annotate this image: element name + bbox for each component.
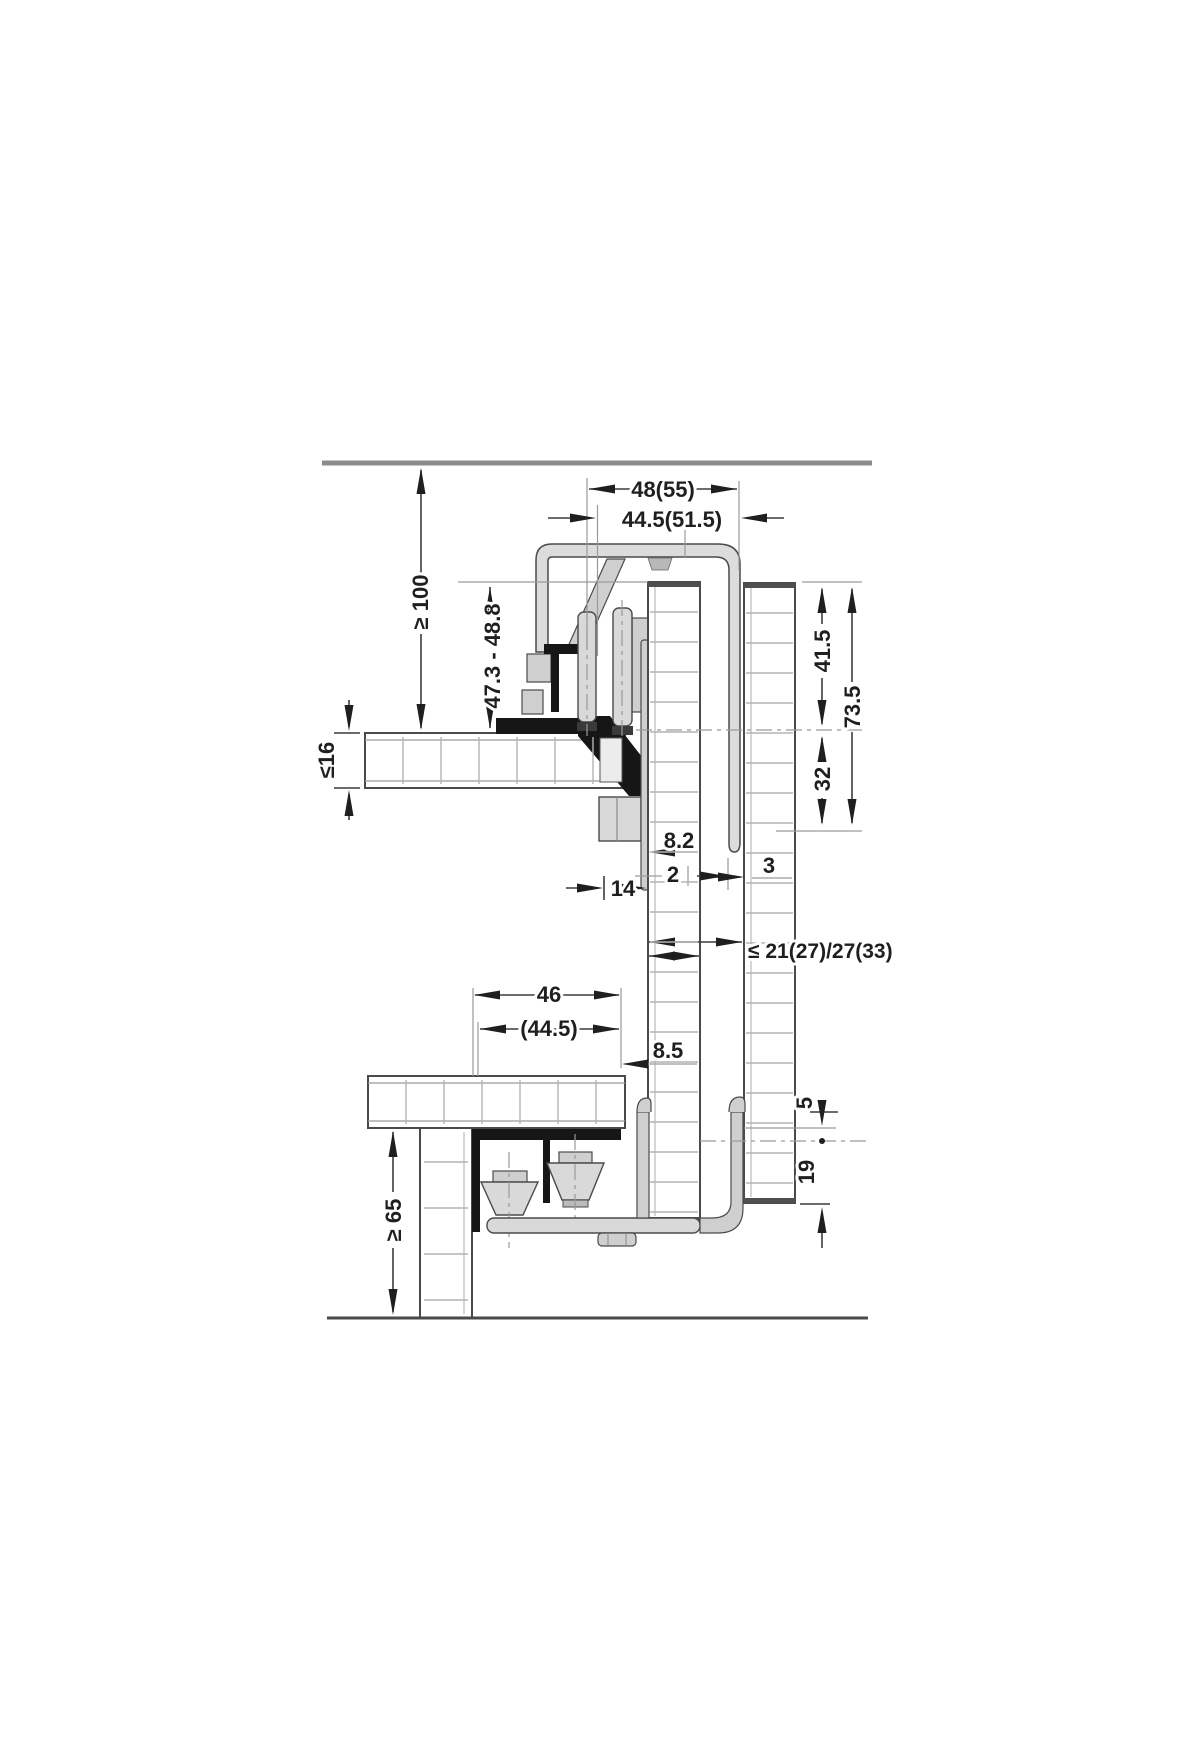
dim-label-gap-5: 5: [792, 1097, 817, 1109]
dim-label-gap-14: 14: [611, 876, 636, 901]
dim-label-upper-engagement: 41.5: [810, 630, 835, 673]
adjusting-screw: [522, 690, 543, 714]
inner-door-guide: [637, 1112, 649, 1218]
dim-label-top-panel-thickness: ≤16: [314, 742, 339, 779]
page-background: [0, 0, 1200, 1760]
dim-label-bottom-engagement: 19: [794, 1160, 819, 1184]
adjusting-screw: [527, 654, 551, 682]
drawing-page: 48(55) 44.5(51.5) ≥ 100 47.3 - 48.8 ≤16 …: [0, 0, 1200, 1760]
inner-door-panel: [648, 582, 700, 1222]
roller-cap: [493, 1171, 527, 1182]
dim-label-runner-width: 44.5(51.5): [622, 507, 722, 532]
bracket-foot: [600, 738, 622, 782]
dim-label-track-width: 48(55): [631, 477, 695, 502]
dim-label-door-top-range: 47.3 - 48.8: [480, 603, 505, 708]
dim-label-gap-3: 3: [763, 853, 775, 878]
dim-label-overall-height: 73.5: [840, 686, 865, 729]
track-notch: [648, 558, 672, 570]
outer-door-panel: [744, 583, 795, 1203]
dim-label-gap-2: 2: [667, 862, 679, 887]
dim-label-guide-width: 46: [537, 982, 561, 1007]
guide-block: [599, 797, 641, 841]
dim-label-lower-engagement: 32: [810, 767, 835, 791]
dim-label-gap-8-2: 8.2: [664, 828, 695, 853]
dim-label-clearance-below: ≥ 65: [381, 1199, 406, 1242]
technical-drawing: 48(55) 44.5(51.5) ≥ 100 47.3 - 48.8 ≤16 …: [0, 0, 1200, 1760]
guide-rail: [487, 1218, 700, 1233]
dim-label-guide-width-alt: (44.5): [520, 1016, 577, 1041]
dim-label-clearance-above: ≥ 100: [408, 575, 433, 630]
rail-clip: [598, 1233, 636, 1246]
dim-label-door-distance: ≤ 21(27)/27(33): [748, 940, 893, 963]
dim-label-gap-8-5: 8.5: [653, 1038, 684, 1063]
